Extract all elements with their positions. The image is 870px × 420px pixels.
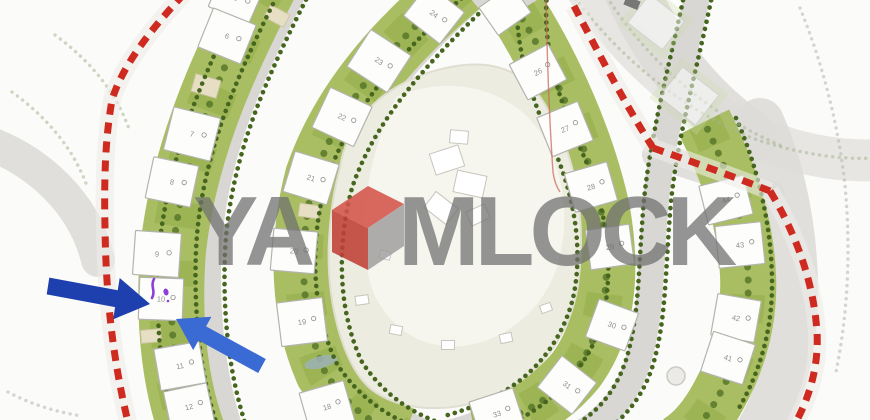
plot-10: 10 xyxy=(138,277,183,321)
plot-number: 19 xyxy=(297,317,306,327)
club-building xyxy=(449,130,468,145)
plot-number: 9 xyxy=(155,249,160,258)
plot-43: 43 xyxy=(715,222,765,269)
club-building xyxy=(442,341,455,350)
plot-number: 10 xyxy=(157,294,166,303)
plot-20: 20 xyxy=(270,228,317,274)
plot-19: 19 xyxy=(276,297,327,346)
amenity-building xyxy=(298,203,320,219)
plot-number: 11 xyxy=(175,361,184,371)
site-plan-svg: 5678910111218192021222324262728293031334… xyxy=(0,0,870,420)
plot-number: 20 xyxy=(289,246,298,256)
plot-number: 43 xyxy=(735,240,744,250)
plot-8: 8 xyxy=(145,157,199,208)
site-plan-map: 5678910111218192021222324262728293031334… xyxy=(0,0,870,420)
plot-9: 9 xyxy=(133,230,182,277)
plot-11: 11 xyxy=(154,341,207,390)
plot-number: 29 xyxy=(605,242,615,252)
cul-de-sac xyxy=(667,367,685,385)
plot-29: 29 xyxy=(585,224,634,270)
club-building xyxy=(389,325,402,336)
club-building xyxy=(499,332,513,343)
plot-number: 42 xyxy=(731,313,741,323)
club-building xyxy=(355,295,369,306)
